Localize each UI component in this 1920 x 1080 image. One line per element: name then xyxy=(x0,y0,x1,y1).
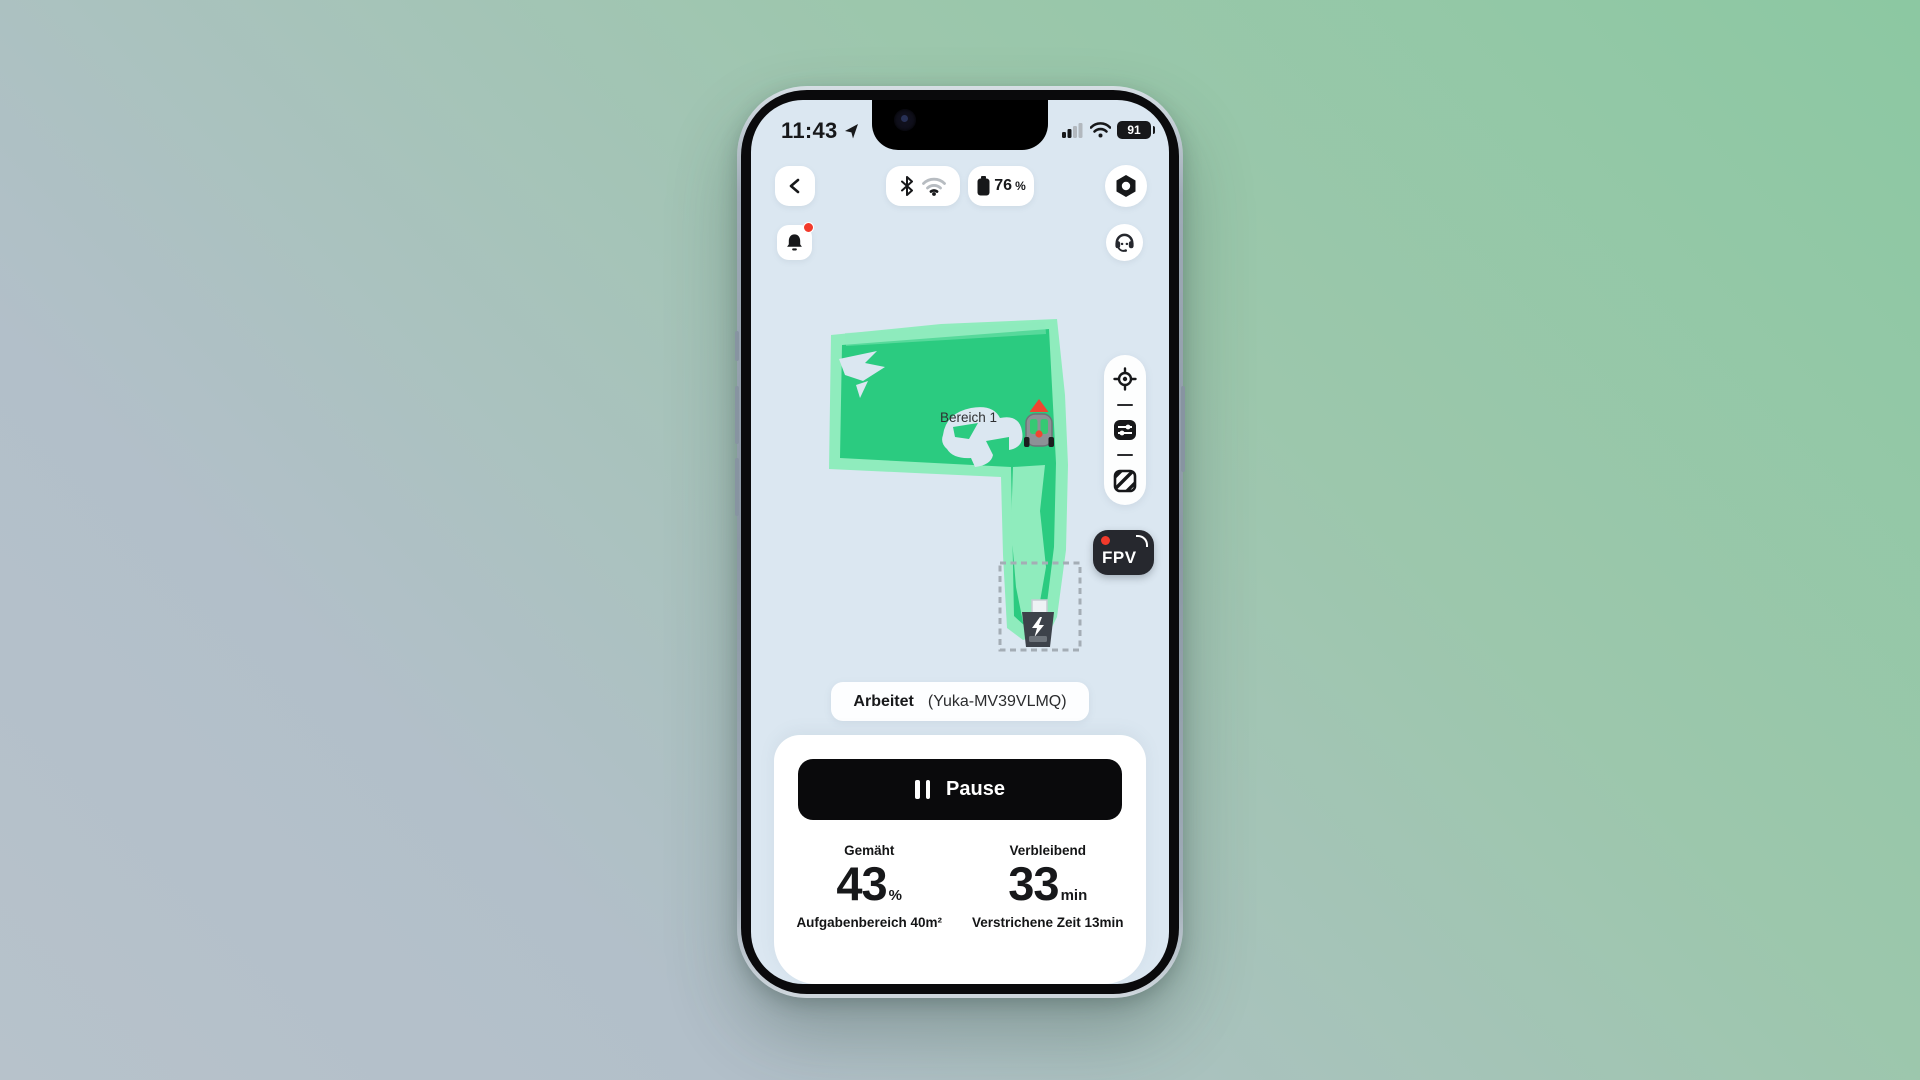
mowed-unit: % xyxy=(889,888,902,903)
device-battery-value: 76 xyxy=(994,177,1012,195)
notifications-button[interactable] xyxy=(777,225,812,260)
volume-down-button xyxy=(735,458,739,516)
hatched-zone-icon xyxy=(1113,469,1137,493)
remaining-value: 33 xyxy=(1008,860,1058,907)
settings-button[interactable] xyxy=(1105,165,1147,207)
remaining-stat: Verbleibend 33 min Verstrichene Zeit 13m… xyxy=(972,843,1124,930)
divider xyxy=(1117,404,1133,406)
clock-time: 11:43 xyxy=(781,118,838,144)
pause-icon xyxy=(915,780,930,799)
mowed-stat: Gemäht 43 % Aufgabenbereich 40m² xyxy=(796,843,942,930)
phone-bezel: 11:43 xyxy=(741,90,1179,994)
power-button xyxy=(1181,386,1185,472)
locate-button[interactable] xyxy=(1113,367,1137,391)
notification-badge xyxy=(803,222,814,233)
mowed-value: 43 xyxy=(836,860,886,907)
remaining-label: Verbleibend xyxy=(1010,843,1087,858)
status-bar: 11:43 xyxy=(751,118,1169,144)
remaining-unit: min xyxy=(1061,888,1088,903)
bluetooth-icon xyxy=(900,176,914,196)
robot-device-name: (Yuka-MV39VLMQ) xyxy=(928,693,1067,711)
fpv-camera-button[interactable]: FPV xyxy=(1093,530,1154,575)
pause-label: Pause xyxy=(946,778,1005,801)
wifi-status-icon xyxy=(1090,122,1111,138)
location-arrow-icon xyxy=(844,123,860,139)
phone-battery-indicator: 91 xyxy=(1117,121,1151,139)
device-battery-pill[interactable]: 76 % xyxy=(968,166,1034,206)
zone-label: Bereich 1 xyxy=(940,410,997,425)
cellular-signal-icon xyxy=(1062,122,1084,138)
pause-button[interactable]: Pause xyxy=(798,759,1122,820)
crosshair-icon xyxy=(1113,367,1137,391)
sliders-icon xyxy=(1113,419,1137,441)
headset-icon xyxy=(1113,231,1136,254)
task-stats: Gemäht 43 % Aufgabenbereich 40m² Verblei… xyxy=(774,843,1146,930)
device-battery-icon xyxy=(976,175,991,197)
hexagon-nut-icon xyxy=(1113,173,1139,199)
mowed-label: Gemäht xyxy=(844,843,894,858)
support-button[interactable] xyxy=(1106,224,1143,261)
robot-status-pill[interactable]: Arbeitet (Yuka-MV39VLMQ) xyxy=(831,682,1089,721)
zone-layers-button[interactable] xyxy=(1113,469,1137,493)
volume-up-button xyxy=(735,386,739,444)
device-battery-unit: % xyxy=(1015,179,1026,193)
robot-state: Arbeitet xyxy=(853,693,913,711)
connectivity-pill[interactable] xyxy=(886,166,960,206)
elapsed-time: Verstrichene Zeit 13min xyxy=(972,915,1124,930)
app-screen: 11:43 xyxy=(751,100,1169,984)
chevron-left-icon xyxy=(787,178,803,194)
mute-switch xyxy=(735,331,739,361)
bell-icon xyxy=(785,233,804,252)
phone-frame: 11:43 xyxy=(737,86,1183,998)
wifi-icon xyxy=(922,177,946,196)
back-button[interactable] xyxy=(775,166,815,206)
recording-dot-icon xyxy=(1101,536,1110,545)
viewfinder-corner-icon xyxy=(1136,535,1148,547)
map-settings-button[interactable] xyxy=(1113,418,1137,442)
mowing-map[interactable]: Bereich 1 xyxy=(823,315,1087,663)
divider xyxy=(1117,454,1133,456)
task-area: Aufgabenbereich 40m² xyxy=(796,915,942,930)
task-control-card: Pause Gemäht 43 % Aufgabenbereich 40m² V… xyxy=(774,735,1146,984)
fpv-label: FPV xyxy=(1102,548,1137,568)
map-tools-panel xyxy=(1104,355,1146,505)
